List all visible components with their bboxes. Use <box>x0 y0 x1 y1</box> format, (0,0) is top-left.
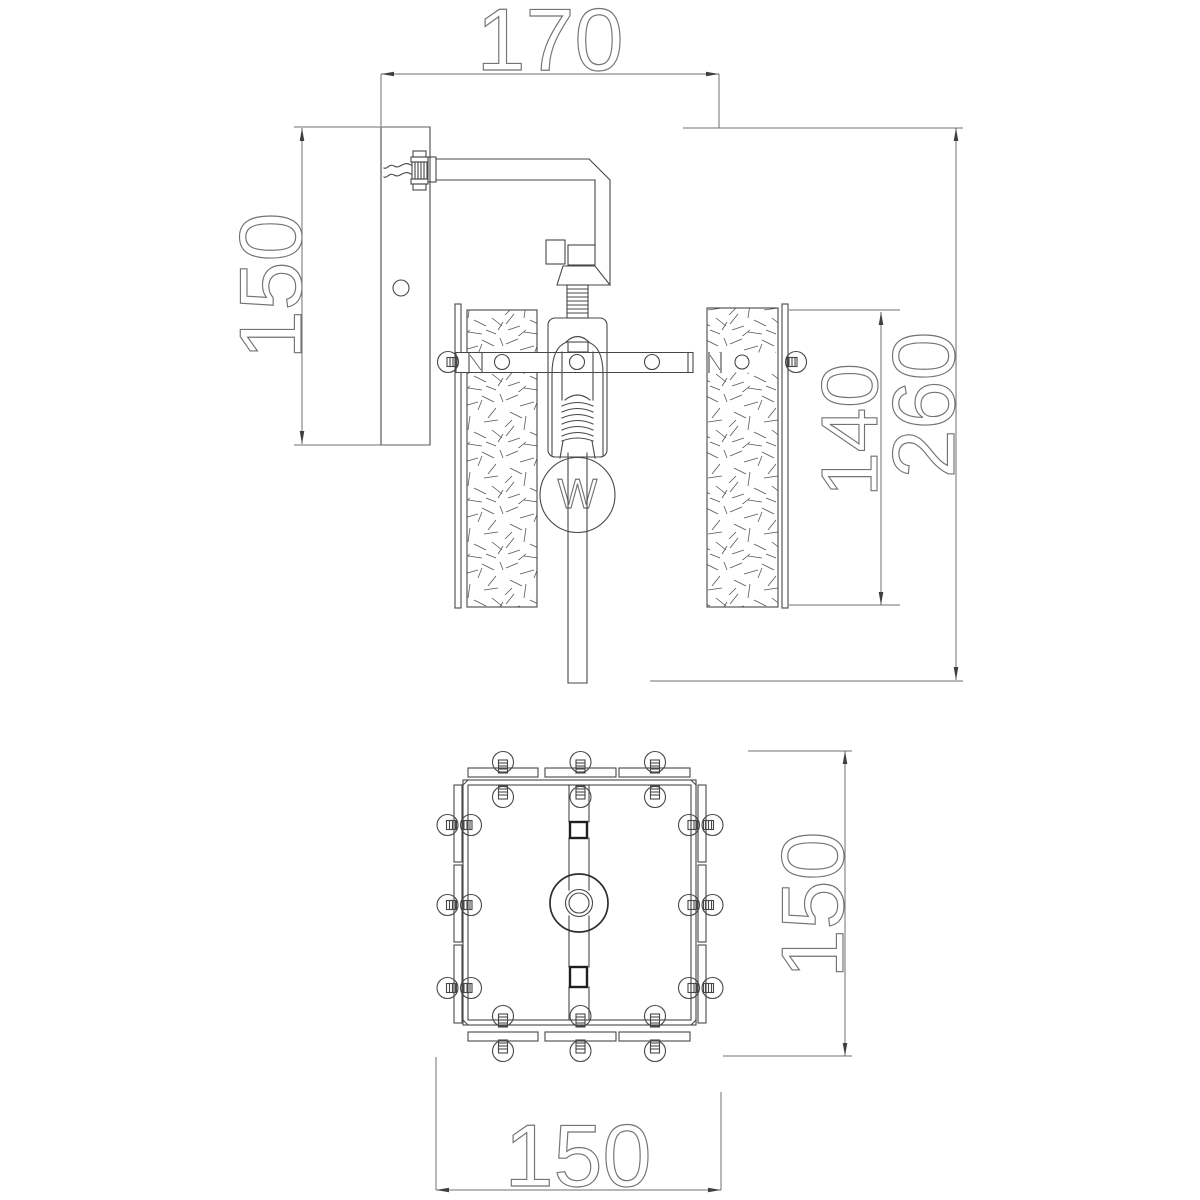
clamp-block-bottom <box>570 967 587 987</box>
dim-text-150-plan-bottom: 150 <box>505 1106 652 1200</box>
glass-panel-right <box>707 304 788 608</box>
dim-text-150-left: 150 <box>221 213 320 360</box>
cable-gland <box>411 151 436 190</box>
shade-cap <box>546 240 610 285</box>
mounting-hole <box>393 280 409 296</box>
dim-text-170: 170 <box>477 0 624 89</box>
backplate <box>381 127 430 445</box>
socket-boss <box>550 874 608 932</box>
glass-strips <box>454 768 706 1041</box>
wall-lamp-drawing: W 170 150 <box>0 0 1200 1200</box>
thumb-screw-right <box>786 352 807 373</box>
supply-wires <box>384 164 411 178</box>
front-view: W 170 150 <box>221 0 973 683</box>
dim-depth-170: 170 <box>381 0 719 128</box>
frame <box>463 780 696 1025</box>
screws-right <box>679 815 724 999</box>
bar-hole <box>495 355 510 370</box>
lamp-base-threads <box>562 395 593 441</box>
dim-backplate-150: 150 <box>221 127 430 445</box>
bar-hole <box>645 355 660 370</box>
socket-housing <box>548 318 607 458</box>
technical-drawing-canvas: W 170 150 <box>0 0 1200 1200</box>
dim-plan-width-150: 150 <box>436 1057 721 1200</box>
dim-text-260: 260 <box>874 332 973 479</box>
plan-view: 150 150 <box>436 751 862 1200</box>
clamp-block-top <box>570 822 587 838</box>
center-strip <box>569 785 589 1020</box>
glass-panel-left <box>455 304 537 608</box>
bulb: W <box>540 453 615 683</box>
bulb-wattage-label: W <box>558 470 598 517</box>
threaded-rod <box>567 285 588 318</box>
screws-left <box>437 815 482 999</box>
dim-plan-depth-150: 150 <box>723 751 862 1056</box>
bar-hole <box>570 355 585 370</box>
dim-text-150-plan-right: 150 <box>763 832 862 979</box>
screws-bottom <box>493 1006 666 1062</box>
